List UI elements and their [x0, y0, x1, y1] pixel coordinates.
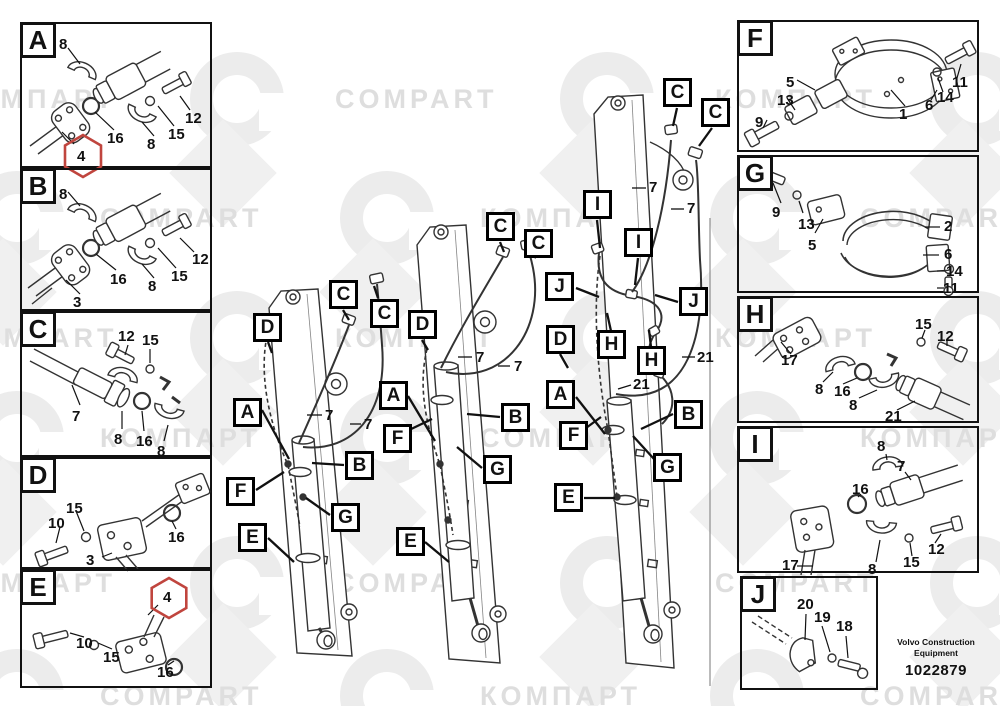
detail-panel-c: C 12 15 7 8 16 8	[20, 311, 212, 457]
callout-i: I	[624, 228, 653, 257]
part-number: 2	[944, 218, 952, 235]
detail-panel-g: G 9 13 5 2 6 14 11	[737, 155, 979, 293]
panel-h-sketch	[739, 298, 981, 425]
panel-f-label: F	[737, 20, 773, 56]
part-number: 8	[877, 438, 885, 455]
panel-i-sketch	[739, 428, 981, 575]
part-number: 16	[107, 130, 124, 147]
callout-letter: I	[595, 194, 600, 216]
part-number: 10	[76, 635, 93, 652]
callout-letter: I	[636, 232, 641, 254]
panel-e-label: E	[20, 569, 56, 605]
callout-e: E	[238, 523, 267, 552]
panel-letter: D	[29, 460, 48, 491]
callout-letter: D	[261, 317, 275, 339]
part-number: 13	[777, 92, 794, 109]
part-number: 11	[943, 280, 959, 297]
callout-letter: E	[404, 531, 417, 553]
callout-letter: C	[532, 233, 546, 255]
part-number: 15	[171, 268, 188, 285]
part-number: 1	[899, 106, 907, 123]
callout-g: G	[483, 455, 512, 484]
part-number: 15	[142, 332, 159, 349]
detail-panel-i: I 8 7 16 17 8 15 12	[737, 426, 979, 573]
panel-letter: J	[751, 579, 765, 610]
callout-f: F	[559, 421, 588, 450]
part-number: 16	[136, 433, 153, 450]
part-number: 12	[118, 328, 135, 345]
part-number: 10	[48, 515, 65, 532]
callout-letter: H	[605, 334, 619, 356]
hose-part-number: 7	[476, 349, 484, 366]
callout-a: A	[546, 380, 575, 409]
part-number: 5	[808, 237, 816, 254]
part-number: 12	[928, 541, 945, 558]
part-number: 16	[110, 271, 127, 288]
panel-letter: B	[29, 171, 48, 202]
part-number: 9	[755, 114, 763, 131]
detail-panel-d: D 15 10 3 16	[20, 457, 212, 569]
callout-letter: B	[353, 455, 367, 477]
callout-letter: B	[509, 407, 523, 429]
part-number: 13	[798, 216, 815, 233]
hose-part-number: 7	[649, 179, 657, 196]
part-number: 6	[944, 246, 952, 263]
callout-letter: B	[682, 404, 696, 426]
callout-letter: F	[392, 428, 404, 450]
part-number: 16	[157, 664, 174, 681]
part-number: 11	[952, 74, 968, 91]
part-number: 7	[897, 458, 905, 475]
callout-letter: G	[338, 507, 353, 529]
callout-j: J	[679, 287, 708, 316]
panel-f-sketch	[739, 22, 981, 154]
part-number: 8	[59, 36, 67, 53]
detail-panel-b: B 8 16 8 15 12 3	[20, 168, 212, 311]
publisher-line1: Volvo Construction	[888, 637, 984, 648]
document-footer: Volvo Construction Equipment 1022879	[888, 637, 984, 679]
panel-c-label: C	[20, 311, 56, 347]
panel-letter: G	[745, 158, 765, 189]
part-number: 14	[946, 263, 963, 280]
callout-d: D	[253, 313, 282, 342]
panel-g-label: G	[737, 155, 773, 191]
callout-letter: H	[645, 350, 659, 372]
callout-letter: C	[671, 82, 685, 104]
hose-part-number: 7	[325, 407, 333, 424]
callout-j: J	[545, 272, 574, 301]
callout-letter: C	[378, 303, 392, 325]
callout-letter: A	[554, 384, 568, 406]
callout-d: D	[408, 310, 437, 339]
callout-h: H	[637, 346, 666, 375]
hose-part-number: 21	[633, 376, 650, 393]
panel-letter: H	[746, 299, 765, 330]
panel-b-label: B	[20, 168, 56, 204]
part-number: 12	[937, 328, 954, 345]
callout-c: C	[701, 98, 730, 127]
publisher-line2: Equipment	[888, 648, 984, 659]
detail-panel-e: E 10 15 16 4	[20, 569, 212, 688]
callout-a: A	[379, 381, 408, 410]
callout-letter: A	[241, 402, 255, 424]
part-number: 3	[86, 552, 94, 569]
callout-f: F	[226, 477, 255, 506]
part-number: 17	[782, 557, 799, 574]
panel-letter: C	[29, 314, 48, 345]
part-number: 17	[781, 352, 798, 369]
middle-arm-sketch	[417, 225, 535, 663]
part-number: 14	[937, 89, 954, 106]
callout-letter: G	[490, 459, 505, 481]
callout-letter: F	[568, 425, 580, 447]
part-number: 5	[786, 74, 794, 91]
hose-part-number: 7	[514, 358, 522, 375]
callout-letter: G	[660, 457, 675, 479]
part-number: 8	[147, 136, 155, 153]
part-number: 8	[59, 186, 67, 203]
hose-part-number: 21	[697, 349, 714, 366]
callout-c: C	[486, 212, 515, 241]
panel-letter: F	[747, 23, 763, 54]
part-number: 21	[885, 408, 902, 425]
callout-c: C	[663, 78, 692, 107]
callout-c: C	[524, 229, 553, 258]
callout-b: B	[345, 451, 374, 480]
part-number: 19	[814, 609, 831, 626]
callout-g: G	[653, 453, 682, 482]
part-number: 9	[772, 204, 780, 221]
callout-letter: A	[387, 385, 401, 407]
callout-letter: E	[246, 527, 259, 549]
panel-a-label: A	[20, 22, 56, 58]
part-number: 8	[849, 397, 857, 414]
hex-part-number: 4	[77, 148, 85, 165]
part-number: 15	[168, 126, 185, 143]
callout-e: E	[396, 527, 425, 556]
part-number: 12	[185, 110, 202, 127]
part-number: 15	[903, 554, 920, 571]
panel-d-label: D	[20, 457, 56, 493]
callout-h: H	[597, 330, 626, 359]
hose-part-number: 7	[687, 200, 695, 217]
part-number: 3	[73, 294, 81, 311]
callout-g: G	[331, 503, 360, 532]
document-number: 1022879	[888, 662, 984, 679]
callout-b: B	[674, 400, 703, 429]
part-number: 8	[148, 278, 156, 295]
detail-panel-a: A 8 16 8 15 12 4	[20, 22, 212, 168]
callout-i: I	[583, 190, 612, 219]
panel-letter: I	[751, 429, 758, 460]
part-number: 15	[103, 649, 120, 666]
callout-e: E	[554, 483, 583, 512]
callout-letter: F	[235, 481, 247, 503]
callout-a: A	[233, 398, 262, 427]
panel-letter: E	[29, 572, 46, 603]
part-number: 20	[797, 596, 814, 613]
parts-diagram-page: КОМПАРТ COMPART КОМПАРТ COMPART КОМПАРТ …	[0, 0, 1000, 706]
callout-letter: C	[337, 284, 351, 306]
callout-letter: J	[688, 291, 699, 313]
hex-part-number: 4	[163, 589, 171, 606]
panel-h-label: H	[737, 296, 773, 332]
part-number: 12	[192, 251, 209, 268]
callout-letter: C	[494, 216, 508, 238]
callout-d: D	[546, 325, 575, 354]
callout-letter: J	[554, 276, 565, 298]
callout-c: C	[329, 280, 358, 309]
part-number: 8	[114, 431, 122, 448]
panel-j-label: J	[740, 576, 776, 612]
part-number: 15	[66, 500, 83, 517]
part-number: 7	[72, 408, 80, 425]
callout-b: B	[501, 403, 530, 432]
callout-letter: E	[562, 487, 575, 509]
part-number: 16	[168, 529, 185, 546]
callout-letter: D	[554, 329, 568, 351]
hose-part-number: 7	[364, 416, 372, 433]
detail-panel-j: J 20 19 18	[740, 576, 878, 690]
panel-i-label: I	[737, 426, 773, 462]
detail-panel-h: H 17 8 16 8 15 12 21	[737, 296, 979, 423]
part-number: 16	[852, 481, 869, 498]
panel-letter: A	[29, 25, 48, 56]
publisher-name: Volvo Construction Equipment	[888, 637, 984, 659]
callout-letter: C	[709, 102, 723, 124]
part-number: 18	[836, 618, 853, 635]
part-number: 8	[815, 381, 823, 398]
part-number: 6	[925, 97, 933, 114]
callout-f: F	[383, 424, 412, 453]
callout-c: C	[370, 299, 399, 328]
callout-letter: D	[416, 314, 430, 336]
detail-panel-f: F 5 13 9 11 14 6 1	[737, 20, 979, 152]
part-number: 15	[915, 316, 932, 333]
